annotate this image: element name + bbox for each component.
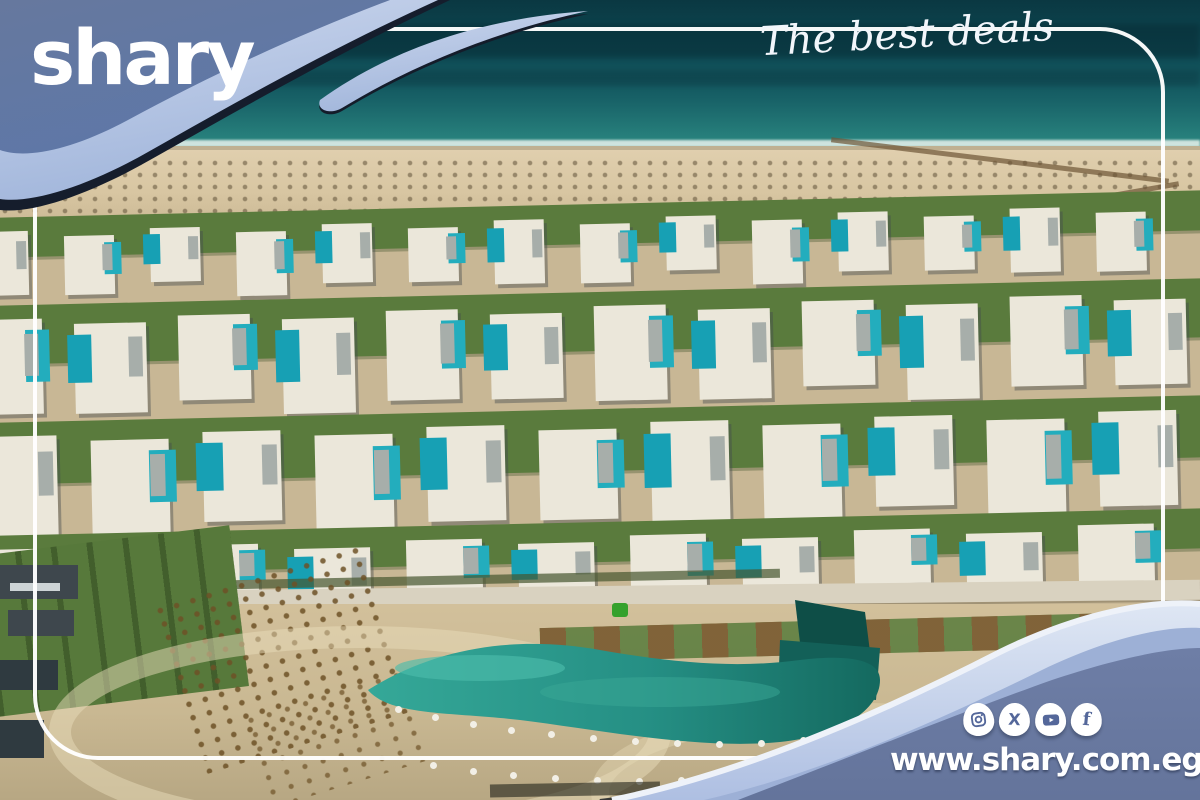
photo-frame-border	[33, 27, 1165, 760]
promo-banner: shary The best deals X f www.shary.com.e…	[0, 0, 1200, 800]
x-twitter-icon[interactable]: X	[998, 702, 1031, 737]
instagram-icon[interactable]	[961, 701, 996, 738]
youtube-icon[interactable]	[1034, 702, 1067, 737]
brand-logo[interactable]: shary	[30, 20, 253, 96]
website-url[interactable]: www.shary.com.eg	[890, 742, 1175, 778]
social-icons-row: X f	[890, 703, 1175, 736]
facebook-icon[interactable]: f	[1069, 701, 1103, 737]
